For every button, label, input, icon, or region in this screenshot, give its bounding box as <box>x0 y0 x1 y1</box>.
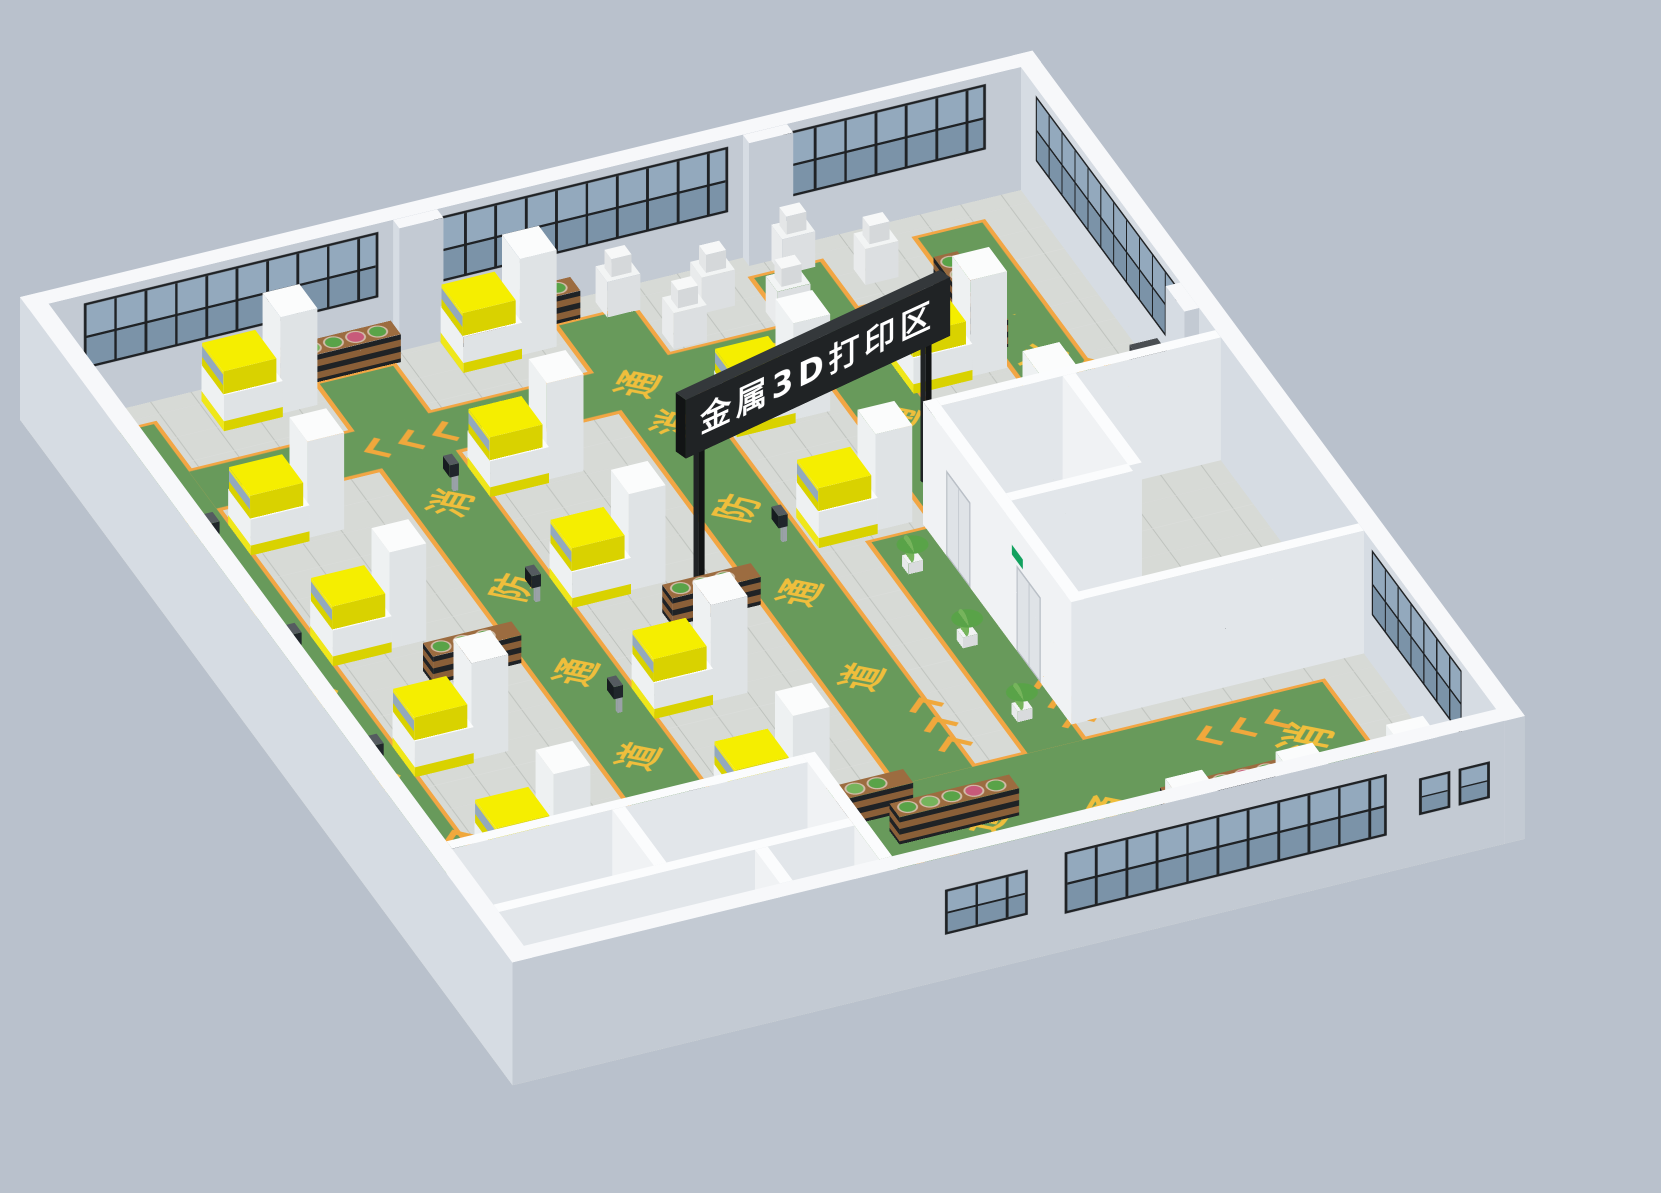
potted-plant <box>963 784 985 797</box>
metal-3d-printer-12-tower-south <box>281 308 318 414</box>
door-split-line <box>958 489 959 571</box>
isometric-world: 消防通道消防通道消防通道消通防消道通防消道通防消金属3D打印区 <box>20 173 1525 1085</box>
door-split-line <box>1029 584 1030 666</box>
metal-3d-printer-5-tower-south <box>629 485 666 591</box>
metal-3d-printer-1-tower-south <box>389 543 426 649</box>
lane-character: 通 <box>609 367 667 401</box>
strip-window <box>945 870 1028 935</box>
lane-character: 道 <box>610 740 668 774</box>
lane-character: 道 <box>833 660 891 694</box>
metal-3d-printer-13-tower-south <box>520 250 557 356</box>
lane-character: 消 <box>422 486 480 520</box>
metal-3d-printer-10-tower-south <box>970 271 1007 377</box>
potted-plant <box>941 790 963 803</box>
potted-plant <box>430 640 452 653</box>
metal-3d-printer-4-tower-south <box>547 374 584 480</box>
metal-3d-printer-9-console-screen-south <box>779 514 788 529</box>
strip-window <box>783 84 986 199</box>
strip-window <box>1419 771 1450 815</box>
metal-3d-printer-4-console-screen-south <box>450 463 459 478</box>
potted-plant <box>985 779 1007 792</box>
lane-character: 通 <box>547 655 605 689</box>
lane-character: 防 <box>708 491 766 525</box>
potted-plant <box>866 777 888 790</box>
metal-3d-printer-9-tower-south <box>875 425 912 531</box>
metal-3d-printer-6-tower-south <box>711 596 748 702</box>
factory-3d-view: 消防通道消防通道消防通道消通防消道通防消道通防消金属3D打印区 <box>0 0 1661 1193</box>
potted-plant <box>919 795 941 808</box>
west-wall-south <box>512 957 532 1085</box>
wall-pillar-0-south <box>399 218 443 352</box>
potted-plant <box>896 801 918 814</box>
metal-3d-printer-6-console-screen-south <box>614 685 623 700</box>
potted-plant <box>344 331 366 344</box>
potted-plant <box>322 336 344 349</box>
potted-plant <box>844 782 866 795</box>
metal-3d-printer-5-console-screen-south <box>532 574 541 589</box>
metal-3d-printer-2-tower-south <box>471 654 508 760</box>
metal-3d-printer-0-tower-south <box>307 433 344 539</box>
strip-window <box>1459 761 1490 805</box>
zone-sign-board-west <box>676 393 686 459</box>
potted-plant <box>367 325 389 338</box>
potted-plant <box>669 582 691 595</box>
lane-character: 通 <box>771 576 829 610</box>
